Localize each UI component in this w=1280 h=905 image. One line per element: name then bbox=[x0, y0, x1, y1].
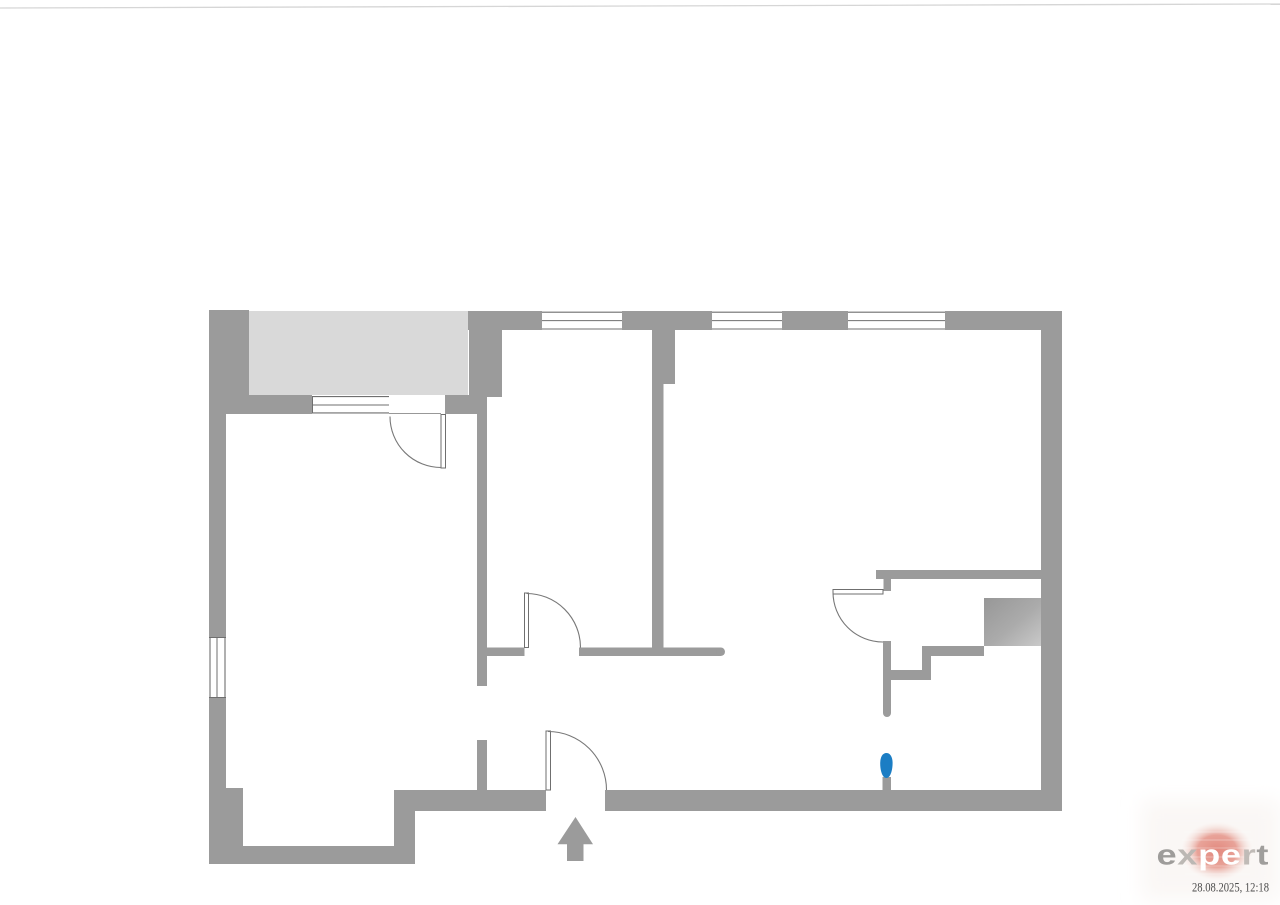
svg-text:28.08.2025, 12:18: 28.08.2025, 12:18 bbox=[1192, 880, 1269, 895]
svg-text:expert: expert bbox=[1157, 838, 1270, 871]
